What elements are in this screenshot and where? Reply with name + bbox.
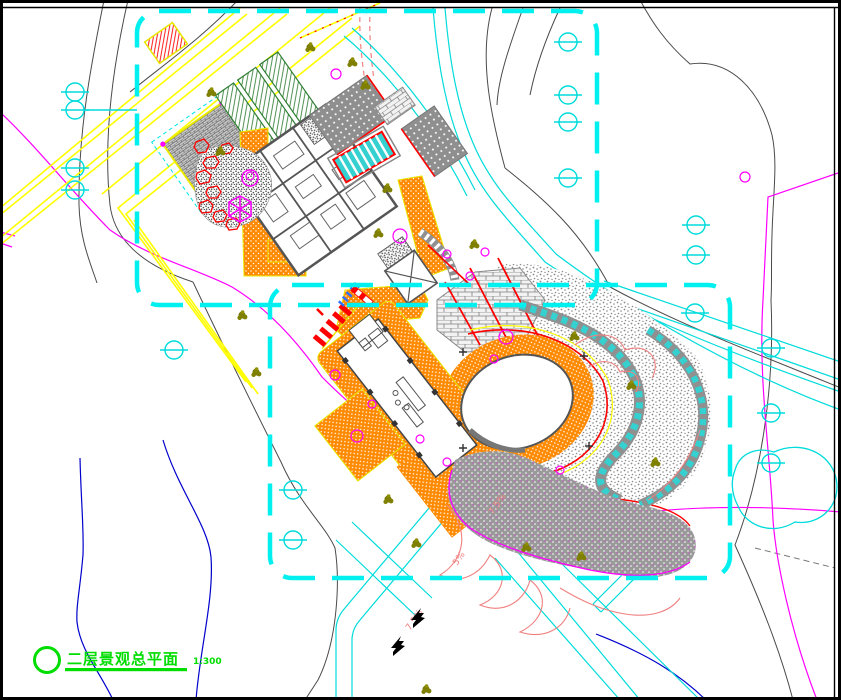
pond-outline (732, 447, 837, 528)
drawing-sheet: 7.5% 5% 7.5% 二层景观总平面 1:300 (0, 0, 841, 700)
title-block: 二层景观总平面 1:300 (35, 648, 222, 673)
slope-label-3: 7.5% (404, 608, 426, 633)
drawing-scale: 1:300 (193, 657, 222, 667)
slope-label-2: 5% (451, 550, 468, 568)
drawing-title: 二层景观总平面 (67, 650, 179, 668)
plaza-dotted-2 (401, 106, 467, 176)
title-underline (65, 668, 187, 671)
title-bubble-icon (35, 648, 60, 673)
upper-building-complex (145, 23, 468, 349)
site-plan-canvas: 7.5% 5% 7.5% 二层景观总平面 1:300 (0, 0, 841, 700)
